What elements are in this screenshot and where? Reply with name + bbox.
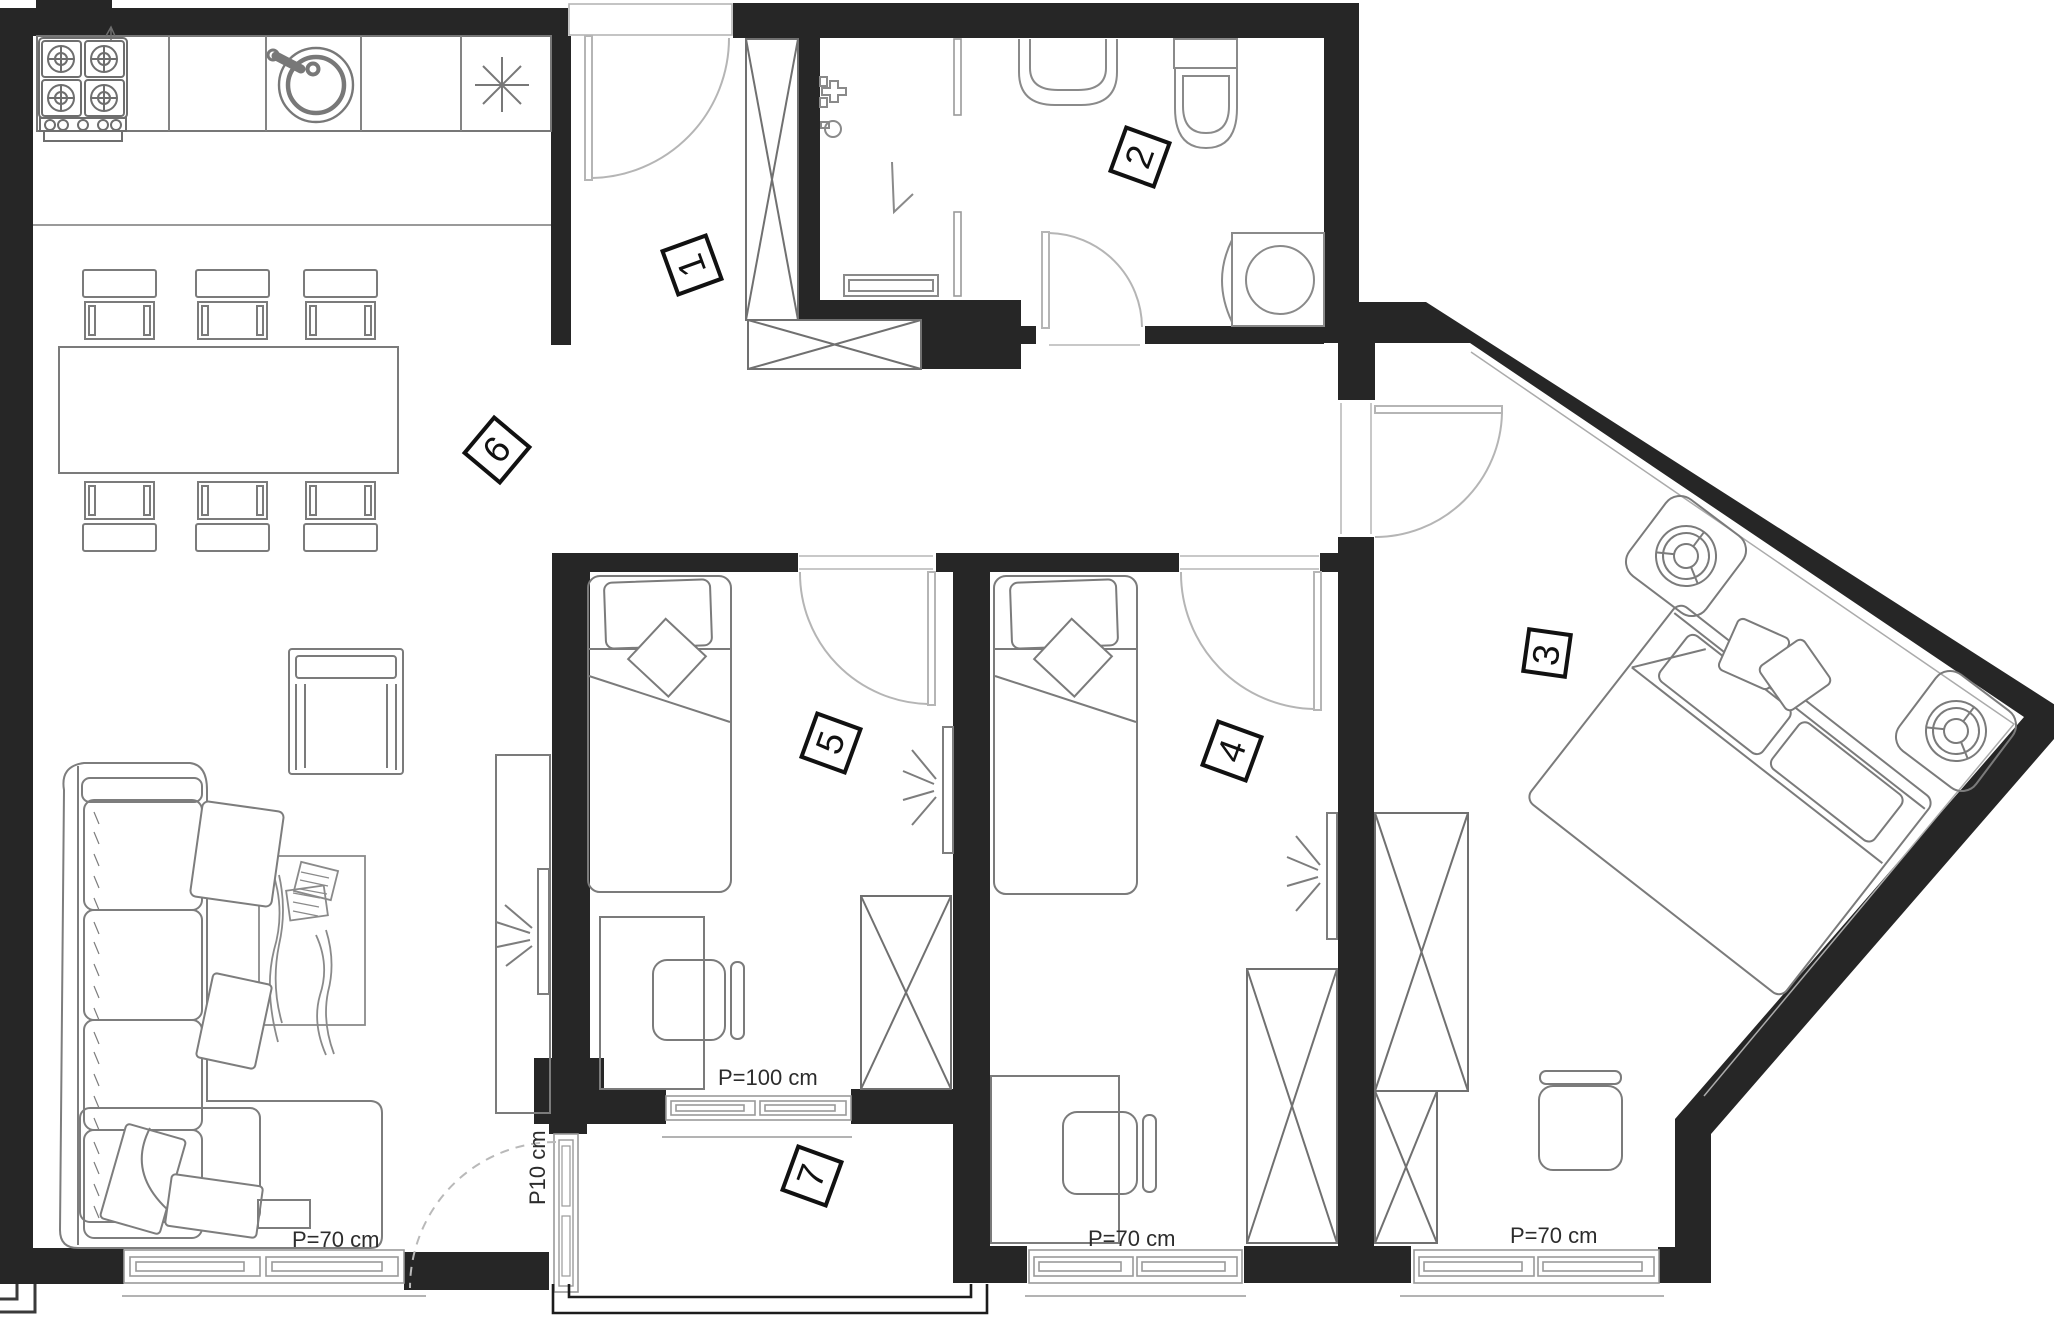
svg-text:P=70 cm: P=70 cm (1510, 1223, 1597, 1248)
svg-text:P10 cm: P10 cm (525, 1130, 550, 1205)
svg-text:P=70 cm: P=70 cm (292, 1227, 379, 1252)
svg-text:P=70 cm: P=70 cm (1088, 1226, 1175, 1251)
svg-text:P=100 cm: P=100 cm (718, 1065, 818, 1090)
